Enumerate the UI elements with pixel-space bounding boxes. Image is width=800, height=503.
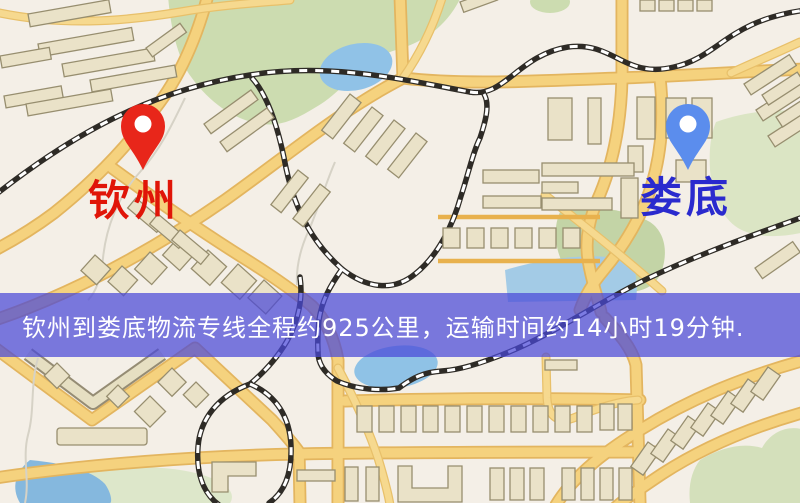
origin-city-label: 钦州 xyxy=(88,180,180,222)
destination-city-label: 娄底 xyxy=(640,177,732,219)
route-info-text: 钦州到娄底物流专线全程约925公里，运输时间约14小时19分钟. xyxy=(0,308,745,343)
route-info-banner: 钦州到娄底物流专线全程约925公里，运输时间约14小时19分钟. xyxy=(0,293,800,357)
map-canvas[interactable]: 钦州 娄底 钦州到娄底物流专线全程约925公里，运输时间约14小时19分钟. xyxy=(0,0,800,503)
